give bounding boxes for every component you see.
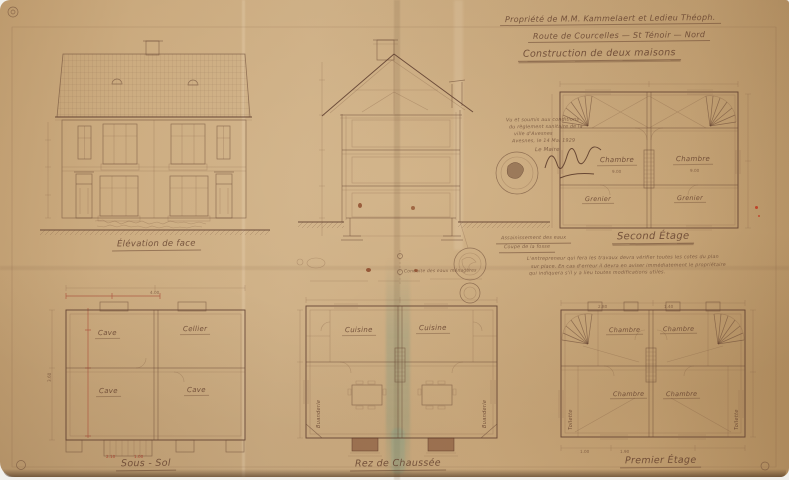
- first-floor-plan: [559, 300, 756, 451]
- room-label: Cave: [95, 330, 120, 339]
- dimension-label: 1.90: [620, 450, 629, 454]
- rust-speck: [358, 203, 362, 208]
- caption-first-floor: Premier Étage: [620, 456, 702, 468]
- front-elevation-drawing: [40, 41, 270, 235]
- room-label-vertical: Toilette: [735, 409, 740, 430]
- red-speck: [758, 215, 760, 217]
- title-line-2: Route de Courcelles — St Ténoir — Nord: [528, 31, 710, 43]
- room-label: Chambre: [597, 157, 637, 166]
- paper-bottom-shadow: [3, 469, 786, 477]
- room-label-vertical: Buanderie: [483, 400, 488, 428]
- room-label: Cellier: [180, 326, 210, 335]
- approval-note-line: ville d'Avesnes: [514, 133, 553, 138]
- dimension-label: 2.80: [598, 305, 607, 309]
- room-label: Chambre: [606, 327, 643, 336]
- room-label-vertical: Toilette: [569, 409, 574, 430]
- caption-elevation: Élévation de face: [112, 240, 201, 251]
- room-label: Cave: [96, 388, 121, 397]
- dimension-label: 4.00: [150, 291, 159, 295]
- caption-second-floor: Second Étage: [612, 232, 695, 245]
- approval-note-line: Vu et soumis aux conditions: [506, 119, 579, 125]
- room-label: Cuisine: [342, 327, 376, 336]
- rust-speck: [411, 206, 415, 210]
- title-line-3: Construction de deux maisons: [518, 48, 681, 61]
- official-stamp-icon: [496, 152, 538, 194]
- approval-note-line: Le Maire: [535, 148, 560, 154]
- red-speck: [755, 206, 758, 209]
- room-label: Chambre: [660, 326, 697, 335]
- dimension-label: 3.60: [48, 373, 52, 382]
- area-label: 9.00: [690, 169, 699, 173]
- room-label: Cuisine: [416, 325, 450, 334]
- room-label: Chambre: [663, 391, 700, 400]
- room-label: Chambre: [610, 391, 647, 400]
- rust-speck: [366, 268, 371, 272]
- dimension-label: 2.10: [106, 455, 115, 459]
- approval-note-line: du règlement sanitaire de la: [509, 126, 583, 132]
- rust-speck: [414, 269, 418, 272]
- room-label: Chambre: [673, 156, 713, 165]
- dimension-label: 1.00: [134, 455, 143, 459]
- room-label-vertical: Buanderie: [317, 400, 322, 428]
- room-label: Grenier: [582, 196, 614, 205]
- dimension-label: 1.40: [664, 305, 673, 309]
- room-label: Cave: [184, 387, 209, 396]
- ground-floor-plan: [297, 279, 497, 456]
- second-floor-plan: [552, 81, 751, 230]
- section-note-1: Assainissement des eaux: [496, 237, 571, 245]
- dimension-label: 1.00: [580, 450, 589, 454]
- basement-plan: [49, 285, 245, 456]
- area-label: 9.00: [612, 170, 621, 174]
- room-label: Grenier: [674, 195, 706, 204]
- approval-note-line: Avesnes, le 14 Mai 1929: [512, 140, 575, 145]
- scanned-drawing-sheet: Propriété de M.M. Kammelaert et Ledieu T…: [0, 0, 789, 480]
- section-note-2: Coupe de la fosse: [499, 246, 555, 253]
